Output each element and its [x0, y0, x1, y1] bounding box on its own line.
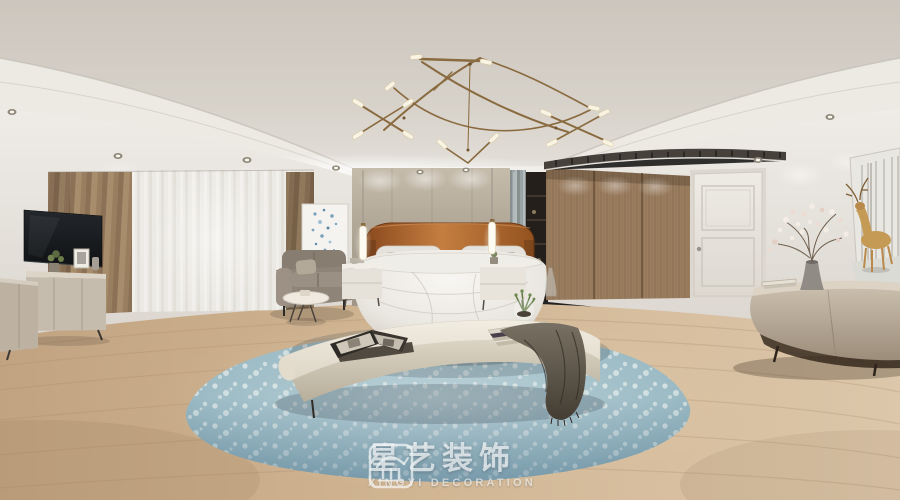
spotlight	[8, 109, 17, 115]
spotlight	[332, 165, 340, 170]
spotlight	[243, 157, 252, 163]
spotlight	[416, 170, 423, 175]
small-vase	[92, 257, 99, 270]
spotlight	[114, 153, 123, 159]
scene-canvas	[0, 0, 900, 500]
panorama-bedroom-photo: 星艺装饰 XINGYI DECORATION	[0, 0, 900, 500]
spotlight	[826, 114, 835, 120]
sofa-pillow	[295, 259, 316, 275]
spotlight	[462, 168, 469, 173]
spotlight	[754, 157, 763, 163]
door	[690, 168, 766, 298]
door-handle	[697, 247, 701, 251]
